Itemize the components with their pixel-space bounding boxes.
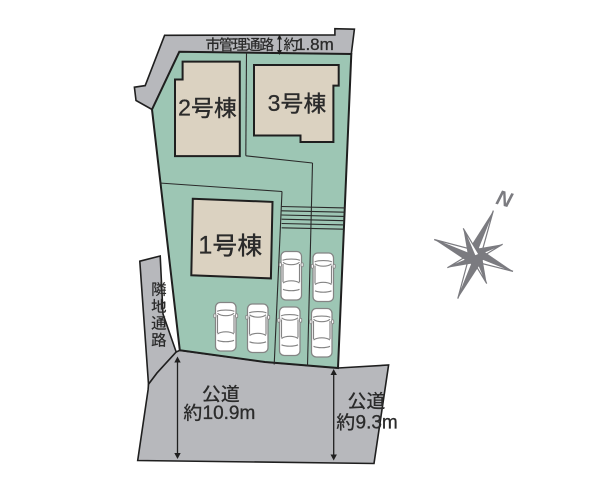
svg-text:1.8m: 1.8m — [296, 35, 334, 54]
svg-text:2: 2 — [178, 95, 191, 121]
svg-text:3: 3 — [268, 90, 281, 116]
svg-text:10.9m: 10.9m — [203, 403, 256, 424]
svg-text:9.3m: 9.3m — [356, 413, 398, 434]
svg-text:1: 1 — [198, 232, 212, 260]
